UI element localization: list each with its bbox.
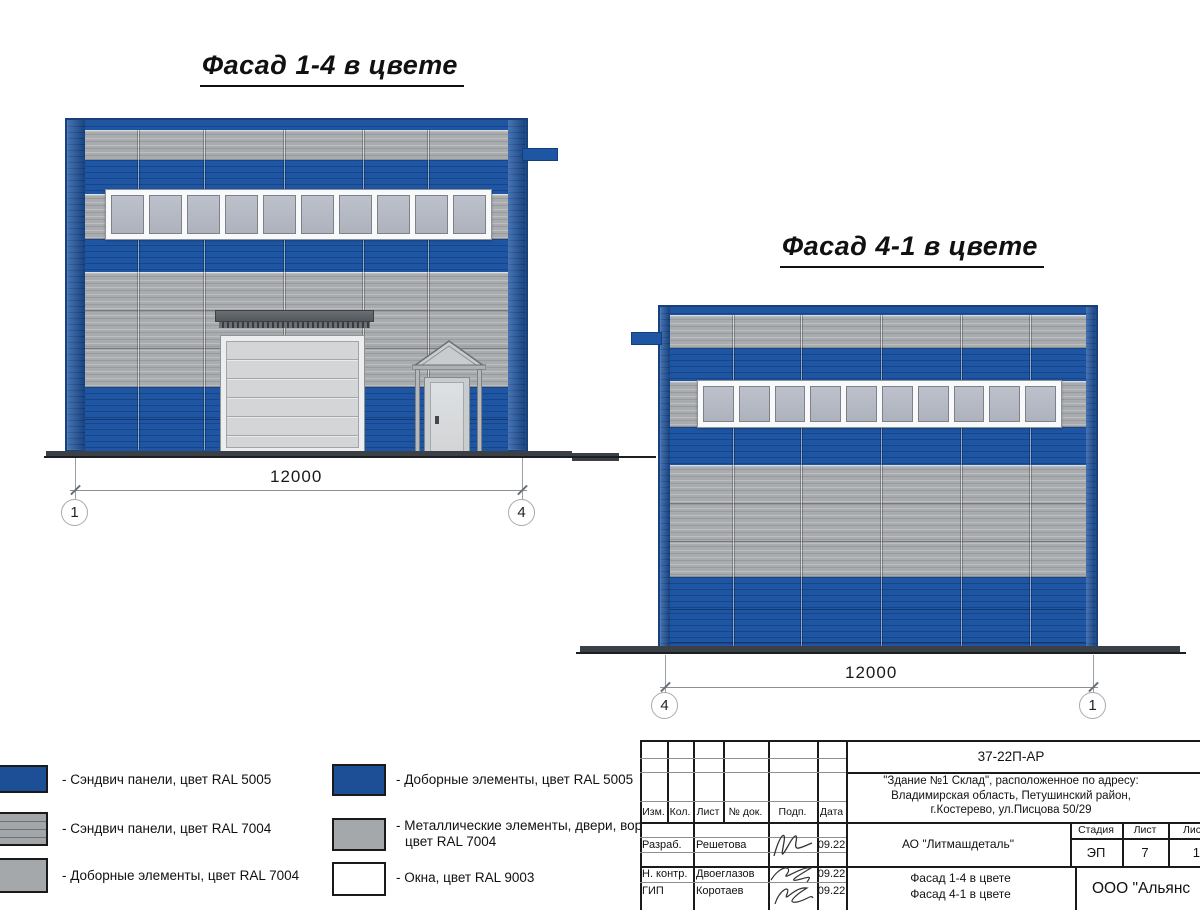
window-pane — [339, 195, 372, 234]
legend-label: - Доборные элементы, цвет RAL 7004 — [62, 868, 299, 884]
facade-41-dimension-value: 12000 — [845, 663, 897, 683]
row-razrab-role: Разраб. — [642, 837, 693, 852]
window-pane — [810, 386, 841, 422]
door-handle — [435, 416, 439, 424]
sectional-gate — [220, 335, 365, 454]
project-address: "Здание №1 Склад", расположенное по адре… — [846, 774, 1176, 818]
legend-label: - Окна, цвет RAL 9003 — [396, 870, 534, 886]
porch-post-left — [415, 369, 420, 454]
facade-14-right-pilaster — [508, 120, 526, 450]
facade-41-right-pilaster — [1086, 307, 1096, 648]
window-pane — [301, 195, 334, 234]
legend-swatch-ral5005-panels — [0, 765, 48, 793]
titleblock: Изм. Кол. Лист № док. Подп. Дата Разраб.… — [640, 740, 1200, 910]
signature-razrab — [770, 826, 816, 864]
col-list: Лист — [693, 801, 723, 822]
doc-number: 37-22П-АР — [846, 740, 1176, 772]
window-pane — [453, 195, 486, 234]
row-nkontr-name: Двоеглазов — [696, 866, 768, 882]
row-razrab-date: 09.22 — [817, 837, 846, 852]
axis-marker-1: 1 — [61, 499, 88, 526]
facade-41-title: Фасад 4-1 в цвете — [780, 231, 1044, 268]
legend-swatch-ral7004-panels — [0, 812, 48, 846]
window-pane — [882, 386, 913, 422]
row-gip-role: ГИП — [642, 882, 693, 899]
gate-visor-fringe — [219, 322, 370, 328]
window-pane — [1025, 386, 1056, 422]
axis-marker-1b: 1 — [1079, 692, 1106, 719]
facade-14-title: Фасад 1-4 в цвете — [200, 50, 464, 87]
axis-marker-4: 4 — [508, 499, 535, 526]
window-pane — [111, 195, 144, 234]
facade-14-dimension-value: 12000 — [270, 467, 322, 487]
col-kol: Кол. — [667, 801, 693, 822]
facade-41-dimension-line — [660, 687, 1098, 688]
facade-41-drawing — [658, 305, 1098, 650]
sheet-title: Фасад 1-4 в цвете Фасад 4-1 в цвете — [846, 870, 1075, 902]
window-pane — [989, 386, 1020, 422]
window-pane — [263, 195, 296, 234]
row-gip-date: 09.22 — [817, 882, 846, 899]
facade-41-ribbon-window — [697, 380, 1062, 428]
sheets-value: 14 — [1168, 838, 1200, 866]
row-razrab-name: Решетова — [696, 837, 768, 852]
porch-post-right — [477, 369, 482, 454]
sheet-label: Лист — [1122, 822, 1168, 838]
window-pane — [739, 386, 770, 422]
facade-14-drawing — [65, 118, 528, 452]
row-gip-name: Коротаев — [696, 882, 768, 899]
stage-label: Стадия — [1070, 822, 1122, 838]
sheets-label: Листов — [1168, 822, 1200, 838]
legend-label: - Доборные элементы, цвет RAL 5005 — [396, 772, 633, 788]
facade-14-ribbon-window — [105, 189, 492, 240]
legend-label: - Сэндвич панели, цвет RAL 7004 — [62, 821, 271, 837]
col-doc: № док. — [723, 801, 768, 822]
signature-nkontr-gip — [767, 860, 819, 908]
window-pane — [918, 386, 949, 422]
stage-value: ЭП — [1070, 838, 1122, 866]
facade-14-left-pilaster — [67, 120, 85, 450]
design-company: ООО "Альянс — [1092, 880, 1190, 898]
col-podp: Подп. — [768, 801, 817, 822]
legend-label: - Сэндвич панели, цвет RAL 5005 — [62, 772, 271, 788]
facade-41-roof-outlet — [631, 332, 662, 345]
window-pane — [377, 195, 410, 234]
legend-swatch-ral7004-trim — [0, 858, 48, 893]
legend-label: - Металлические элементы, двери, ворота,… — [396, 818, 667, 850]
window-pane — [415, 195, 448, 234]
sheet-value: 7 — [1122, 838, 1168, 866]
facade-14-roof-outlet — [522, 148, 558, 161]
window-pane — [846, 386, 877, 422]
gate-visor — [215, 310, 374, 322]
door-canopy — [412, 338, 486, 370]
client-name: АО "Литмашдеталь" — [846, 822, 1070, 866]
facade-14-dimension-line — [70, 490, 527, 491]
col-izm: Изм. — [640, 801, 667, 822]
legend-swatch-ral7004-metal — [332, 818, 386, 851]
window-pane — [187, 195, 220, 234]
window-pane — [775, 386, 806, 422]
row-nkontr-date: 09.22 — [817, 866, 846, 882]
legend-swatch-ral9003-windows — [332, 862, 386, 896]
window-pane — [225, 195, 258, 234]
window-pane — [954, 386, 985, 422]
drawing-sheet: Фасад 1-4 в цвете Фасад 4-1 в цвете — [0, 0, 1200, 900]
axis-marker-4b: 4 — [651, 692, 678, 719]
window-pane — [149, 195, 182, 234]
facade-41-left-pilaster — [660, 307, 670, 648]
row-nkontr-role: Н. контр. — [642, 866, 693, 882]
col-data: Дата — [817, 801, 846, 822]
legend-swatch-ral5005-trim — [332, 764, 386, 796]
window-pane — [703, 386, 734, 422]
